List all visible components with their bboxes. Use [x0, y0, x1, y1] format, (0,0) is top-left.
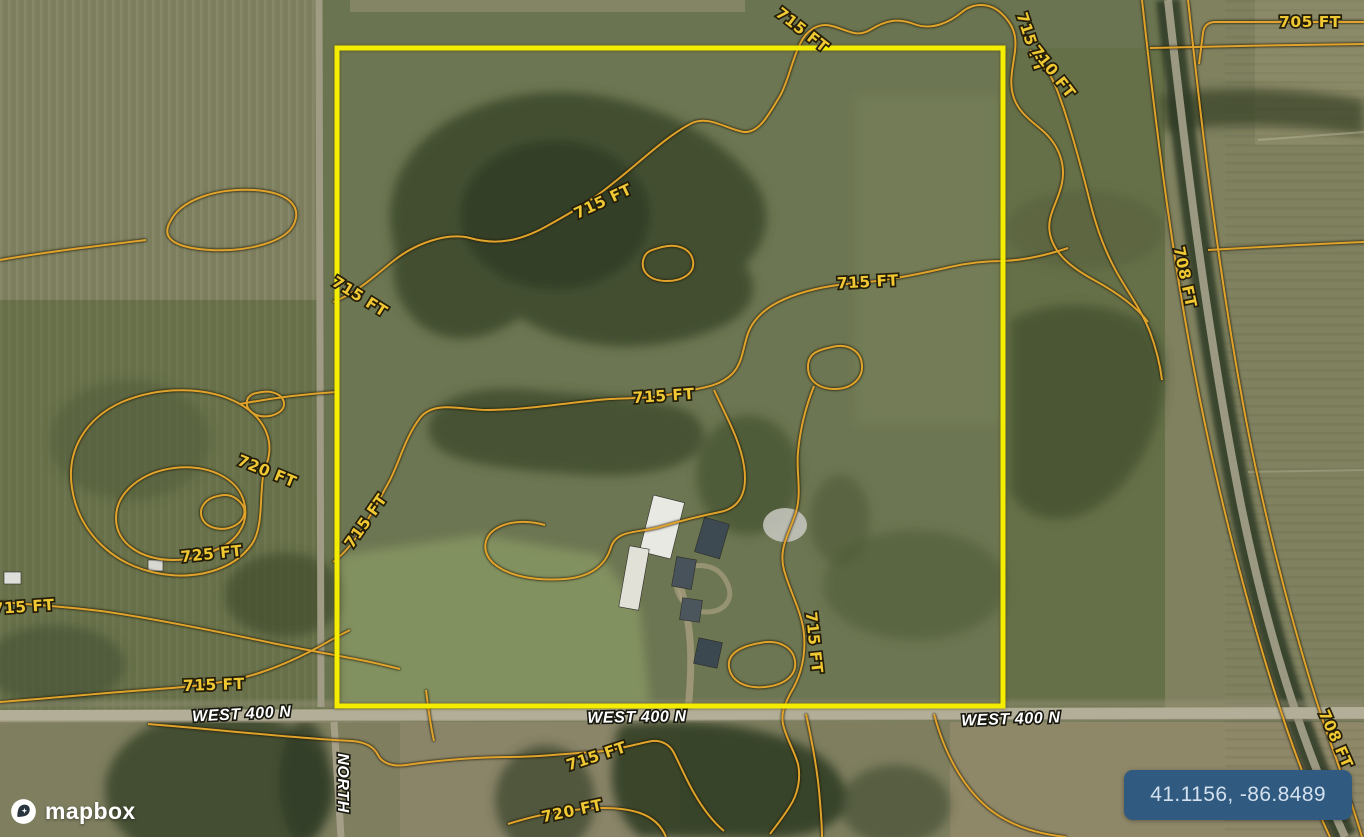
building-neighbor-2	[148, 560, 163, 571]
map-viewport[interactable]: 705 FT 715 FT 715 FT 710 FT 708 FT 715 F…	[0, 0, 1364, 837]
building-shed-2	[680, 598, 703, 623]
road-label-north: NORTH	[334, 753, 351, 813]
satellite-map-canvas[interactable]: 705 FT 715 FT 715 FT 710 FT 708 FT 715 F…	[0, 0, 1364, 837]
mapbox-logo-icon	[10, 798, 37, 825]
building-neighbor-1	[4, 572, 21, 584]
mapbox-logo[interactable]: mapbox	[10, 798, 136, 825]
mapbox-logo-text: mapbox	[45, 798, 136, 825]
road-label-west-400-n: WEST 400 N	[587, 708, 687, 727]
contour-label: 705 FT	[1279, 13, 1341, 31]
light-ground-patch	[763, 508, 807, 542]
contour-label: 715 FT	[183, 675, 246, 695]
road-label-west-400-n: WEST 400 N	[961, 709, 1061, 729]
coordinate-badge: 41.1156, -86.8489	[1124, 770, 1352, 820]
road-left-vertical	[319, 0, 321, 707]
contour-label: 715 FT	[836, 271, 899, 292]
building-house	[694, 638, 723, 668]
